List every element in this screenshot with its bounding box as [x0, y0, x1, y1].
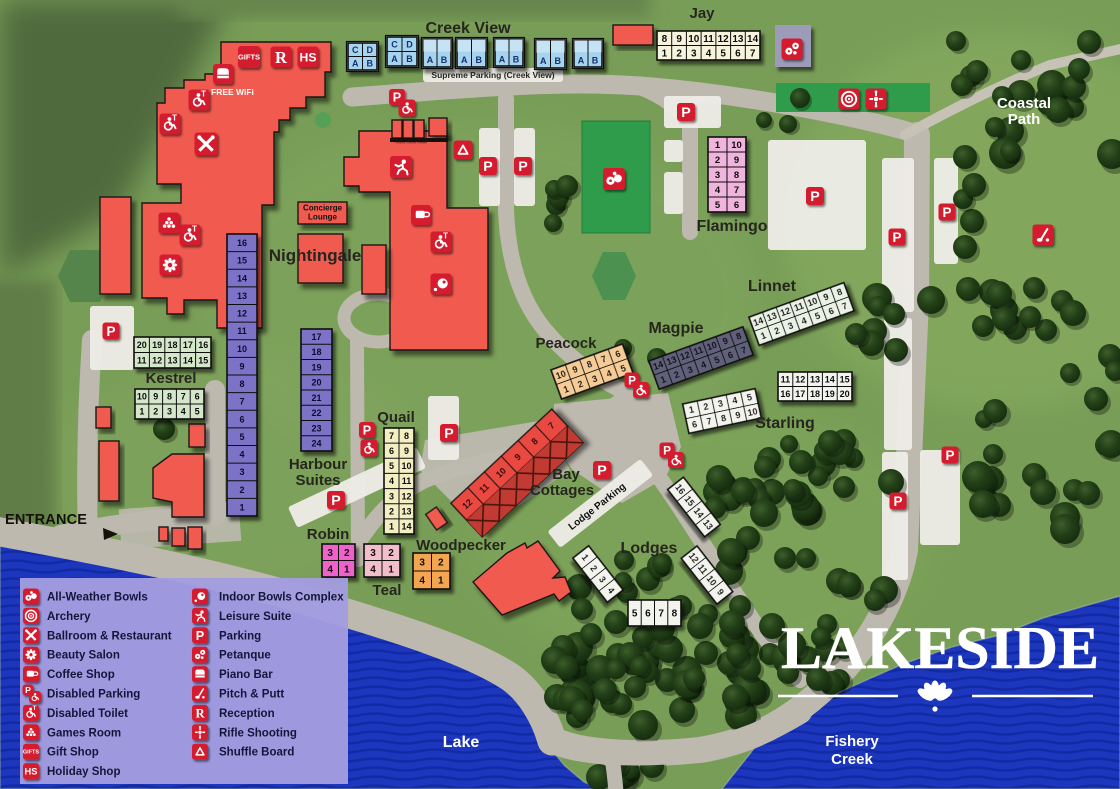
- svg-text:8: 8: [167, 392, 172, 402]
- svg-text:Flamingo: Flamingo: [696, 218, 767, 235]
- svg-text:2: 2: [239, 485, 244, 495]
- svg-text:8: 8: [239, 379, 244, 389]
- svg-text:P: P: [893, 230, 902, 245]
- svg-text:5: 5: [720, 48, 726, 59]
- svg-text:Lodges: Lodges: [621, 540, 678, 557]
- svg-text:Nightingale: Nightingale: [269, 246, 362, 265]
- svg-text:Leisure Suite: Leisure Suite: [219, 611, 291, 623]
- svg-text:P: P: [483, 159, 492, 175]
- svg-text:8: 8: [672, 609, 678, 620]
- svg-text:12: 12: [237, 309, 247, 319]
- svg-text:10: 10: [731, 140, 742, 151]
- svg-text:9: 9: [153, 392, 158, 402]
- svg-text:4: 4: [239, 450, 244, 460]
- svg-text:FREE WiFi: FREE WiFi: [211, 87, 254, 97]
- svg-text:T: T: [443, 231, 448, 241]
- svg-text:4: 4: [419, 576, 425, 587]
- svg-text:C: C: [391, 40, 398, 50]
- svg-text:11: 11: [237, 326, 247, 336]
- svg-text:2: 2: [344, 548, 350, 559]
- svg-text:14: 14: [183, 356, 193, 366]
- svg-text:9: 9: [734, 155, 739, 166]
- svg-text:8: 8: [734, 170, 739, 181]
- svg-text:15: 15: [198, 356, 208, 366]
- svg-text:16: 16: [198, 340, 208, 350]
- svg-text:A: A: [540, 56, 547, 66]
- svg-text:Jay: Jay: [689, 5, 715, 22]
- svg-text:3: 3: [370, 548, 376, 559]
- svg-text:Archery: Archery: [47, 611, 91, 623]
- svg-text:3: 3: [327, 548, 333, 559]
- svg-text:1: 1: [344, 564, 350, 575]
- svg-text:P: P: [681, 105, 690, 121]
- svg-text:12: 12: [152, 356, 162, 366]
- svg-text:7: 7: [658, 609, 664, 620]
- svg-text:Ballroom & Restaurant: Ballroom & Restaurant: [47, 630, 172, 642]
- svg-text:7: 7: [239, 397, 244, 407]
- svg-text:22: 22: [311, 408, 321, 418]
- svg-text:3: 3: [691, 48, 697, 59]
- svg-text:B: B: [513, 55, 520, 65]
- svg-text:8: 8: [404, 431, 409, 441]
- svg-text:P: P: [946, 448, 955, 463]
- svg-text:ENTRANCE: ENTRANCE: [5, 512, 87, 528]
- svg-text:Robin: Robin: [307, 526, 350, 543]
- svg-text:HS: HS: [300, 50, 317, 64]
- svg-text:3: 3: [419, 558, 425, 569]
- svg-text:13: 13: [167, 356, 177, 366]
- svg-text:Disabled Parking: Disabled Parking: [47, 689, 140, 701]
- svg-text:Indoor Bowls Complex: Indoor Bowls Complex: [219, 592, 344, 604]
- svg-text:17: 17: [795, 389, 805, 399]
- svg-text:Piano Bar: Piano Bar: [219, 669, 273, 681]
- svg-text:24: 24: [311, 439, 321, 449]
- svg-text:10: 10: [137, 392, 147, 402]
- svg-text:13: 13: [237, 291, 247, 301]
- svg-text:A: A: [499, 55, 506, 65]
- svg-text:HS: HS: [25, 766, 38, 776]
- svg-text:3: 3: [167, 407, 172, 417]
- svg-text:T: T: [172, 113, 177, 123]
- svg-text:R: R: [195, 706, 205, 720]
- svg-text:A: A: [352, 59, 359, 69]
- svg-text:20: 20: [840, 389, 850, 399]
- svg-text:Coastal: Coastal: [997, 95, 1051, 112]
- svg-text:Teal: Teal: [373, 582, 402, 599]
- svg-text:Supreme Parking (Creek View): Supreme Parking (Creek View): [431, 70, 554, 80]
- svg-text:P: P: [943, 205, 952, 220]
- svg-text:10: 10: [688, 34, 700, 45]
- svg-text:5: 5: [389, 461, 394, 471]
- svg-text:Shuffle Board: Shuffle Board: [219, 747, 294, 759]
- svg-text:12: 12: [718, 34, 730, 45]
- svg-text:B: B: [367, 59, 374, 69]
- svg-text:Coffee Shop: Coffee Shop: [47, 669, 115, 681]
- svg-text:R: R: [275, 48, 288, 67]
- svg-text:8: 8: [662, 34, 668, 45]
- svg-text:Peacock: Peacock: [536, 335, 598, 352]
- svg-text:Gift Shop: Gift Shop: [47, 747, 99, 759]
- svg-text:4: 4: [181, 407, 186, 417]
- svg-text:A: A: [461, 55, 468, 65]
- svg-text:14: 14: [747, 34, 759, 45]
- svg-text:9: 9: [676, 34, 682, 45]
- svg-text:B: B: [592, 56, 599, 66]
- svg-text:7: 7: [181, 392, 186, 402]
- svg-text:6: 6: [195, 392, 200, 402]
- svg-text:Reception: Reception: [219, 708, 275, 720]
- svg-text:3: 3: [715, 170, 720, 181]
- svg-text:4: 4: [389, 476, 394, 486]
- svg-text:4: 4: [715, 185, 721, 196]
- svg-text:All-Weather Bowls: All-Weather Bowls: [47, 592, 148, 604]
- svg-text:GIFTS: GIFTS: [23, 750, 40, 756]
- svg-text:D: D: [367, 45, 374, 55]
- svg-text:18: 18: [167, 340, 177, 350]
- svg-text:Magpie: Magpie: [648, 320, 703, 337]
- svg-text:18: 18: [810, 389, 820, 399]
- svg-text:7: 7: [389, 431, 394, 441]
- svg-text:P: P: [518, 159, 527, 175]
- svg-text:6: 6: [645, 609, 651, 620]
- svg-text:15: 15: [840, 375, 850, 385]
- svg-text:11: 11: [703, 34, 714, 45]
- svg-text:P: P: [107, 324, 116, 339]
- svg-text:Suites: Suites: [295, 472, 340, 489]
- svg-text:2: 2: [153, 407, 158, 417]
- svg-text:2: 2: [388, 548, 394, 559]
- svg-text:14: 14: [237, 273, 247, 283]
- svg-text:Cottages: Cottages: [530, 482, 594, 499]
- svg-text:14: 14: [401, 522, 411, 532]
- svg-text:1: 1: [715, 140, 721, 151]
- svg-text:T: T: [192, 224, 197, 234]
- svg-text:10: 10: [237, 344, 247, 354]
- svg-text:B: B: [476, 55, 483, 65]
- svg-text:P: P: [363, 424, 371, 438]
- svg-text:Beauty Salon: Beauty Salon: [47, 650, 120, 662]
- svg-text:6: 6: [389, 446, 394, 456]
- svg-text:12: 12: [795, 375, 805, 385]
- svg-text:2: 2: [676, 48, 682, 59]
- svg-text:2: 2: [438, 558, 444, 569]
- svg-text:5: 5: [195, 407, 200, 417]
- svg-text:P: P: [331, 493, 340, 509]
- svg-text:Fishery: Fishery: [825, 733, 879, 750]
- svg-text:Pitch & Putt: Pitch & Putt: [219, 689, 284, 701]
- svg-text:20: 20: [137, 340, 147, 350]
- svg-text:1: 1: [239, 502, 244, 512]
- svg-text:P: P: [810, 189, 819, 205]
- svg-text:Parking: Parking: [219, 630, 261, 642]
- svg-text:10: 10: [401, 461, 411, 471]
- svg-text:T: T: [33, 705, 37, 712]
- svg-text:13: 13: [401, 507, 411, 517]
- svg-text:Concierge: Concierge: [303, 204, 343, 213]
- svg-text:LAKESIDE: LAKESIDE: [781, 615, 1099, 681]
- svg-text:A: A: [578, 56, 585, 66]
- svg-text:9: 9: [239, 361, 244, 371]
- svg-text:P: P: [894, 494, 903, 509]
- svg-text:Creek: Creek: [831, 751, 873, 768]
- svg-text:Linnet: Linnet: [748, 278, 797, 295]
- svg-text:16: 16: [780, 389, 790, 399]
- svg-text:Woodpecker: Woodpecker: [416, 537, 506, 554]
- svg-text:Rifle Shooting: Rifle Shooting: [219, 727, 297, 739]
- svg-text:15: 15: [237, 256, 247, 266]
- svg-text:P: P: [444, 426, 453, 442]
- svg-text:5: 5: [715, 200, 721, 211]
- svg-text:5: 5: [632, 609, 638, 620]
- svg-text:A: A: [427, 55, 434, 65]
- svg-text:Kestrel: Kestrel: [146, 370, 197, 387]
- svg-text:B: B: [406, 54, 413, 64]
- svg-text:21: 21: [311, 393, 321, 403]
- svg-text:18: 18: [311, 347, 321, 357]
- svg-text:1: 1: [388, 564, 394, 575]
- svg-text:17: 17: [311, 332, 321, 342]
- svg-text:Creek View: Creek View: [425, 20, 511, 37]
- svg-text:Bay: Bay: [552, 466, 580, 483]
- svg-text:1: 1: [662, 48, 668, 59]
- svg-text:B: B: [555, 56, 562, 66]
- svg-text:C: C: [352, 45, 359, 55]
- svg-text:4: 4: [370, 564, 376, 575]
- svg-text:11: 11: [402, 476, 412, 486]
- svg-text:9: 9: [404, 446, 409, 456]
- svg-text:Harbour: Harbour: [289, 456, 348, 473]
- svg-text:GIFTS: GIFTS: [238, 53, 260, 62]
- svg-text:13: 13: [810, 375, 820, 385]
- svg-text:19: 19: [311, 362, 321, 372]
- svg-text:1: 1: [389, 522, 394, 532]
- svg-text:7: 7: [750, 48, 756, 59]
- svg-text:16: 16: [237, 238, 247, 248]
- svg-text:Path: Path: [1008, 111, 1041, 128]
- svg-text:5: 5: [239, 432, 244, 442]
- svg-text:B: B: [441, 55, 448, 65]
- svg-text:13: 13: [732, 34, 744, 45]
- svg-text:Petanque: Petanque: [219, 650, 271, 662]
- svg-text:11: 11: [781, 375, 791, 385]
- svg-text:P: P: [597, 463, 606, 479]
- svg-text:P: P: [196, 629, 204, 643]
- svg-text:Disabled Toilet: Disabled Toilet: [47, 708, 128, 720]
- svg-text:6: 6: [735, 48, 741, 59]
- svg-text:T: T: [201, 89, 206, 99]
- svg-text:19: 19: [152, 340, 162, 350]
- svg-text:23: 23: [311, 423, 321, 433]
- svg-text:4: 4: [327, 564, 333, 575]
- svg-text:D: D: [406, 40, 413, 50]
- svg-text:Lounge: Lounge: [308, 213, 337, 222]
- svg-text:Lake: Lake: [443, 734, 480, 751]
- svg-text:14: 14: [825, 375, 835, 385]
- svg-text:Games Room: Games Room: [47, 727, 121, 739]
- svg-text:11: 11: [137, 356, 147, 366]
- svg-text:4: 4: [706, 48, 712, 59]
- svg-text:12: 12: [401, 491, 411, 501]
- svg-text:1: 1: [139, 407, 144, 417]
- svg-text:3: 3: [239, 467, 244, 477]
- svg-text:Quail: Quail: [377, 409, 415, 426]
- svg-text:Holiday Shop: Holiday Shop: [47, 766, 120, 778]
- svg-text:17: 17: [183, 340, 193, 350]
- svg-text:7: 7: [734, 185, 739, 196]
- svg-text:A: A: [391, 54, 398, 64]
- svg-text:6: 6: [239, 414, 244, 424]
- svg-text:1: 1: [438, 576, 444, 587]
- svg-text:3: 3: [389, 491, 394, 501]
- svg-text:Starling: Starling: [755, 415, 815, 432]
- svg-text:20: 20: [311, 378, 321, 388]
- svg-text:2: 2: [389, 507, 394, 517]
- svg-text:6: 6: [734, 200, 739, 211]
- svg-text:2: 2: [715, 155, 720, 166]
- svg-text:19: 19: [825, 389, 835, 399]
